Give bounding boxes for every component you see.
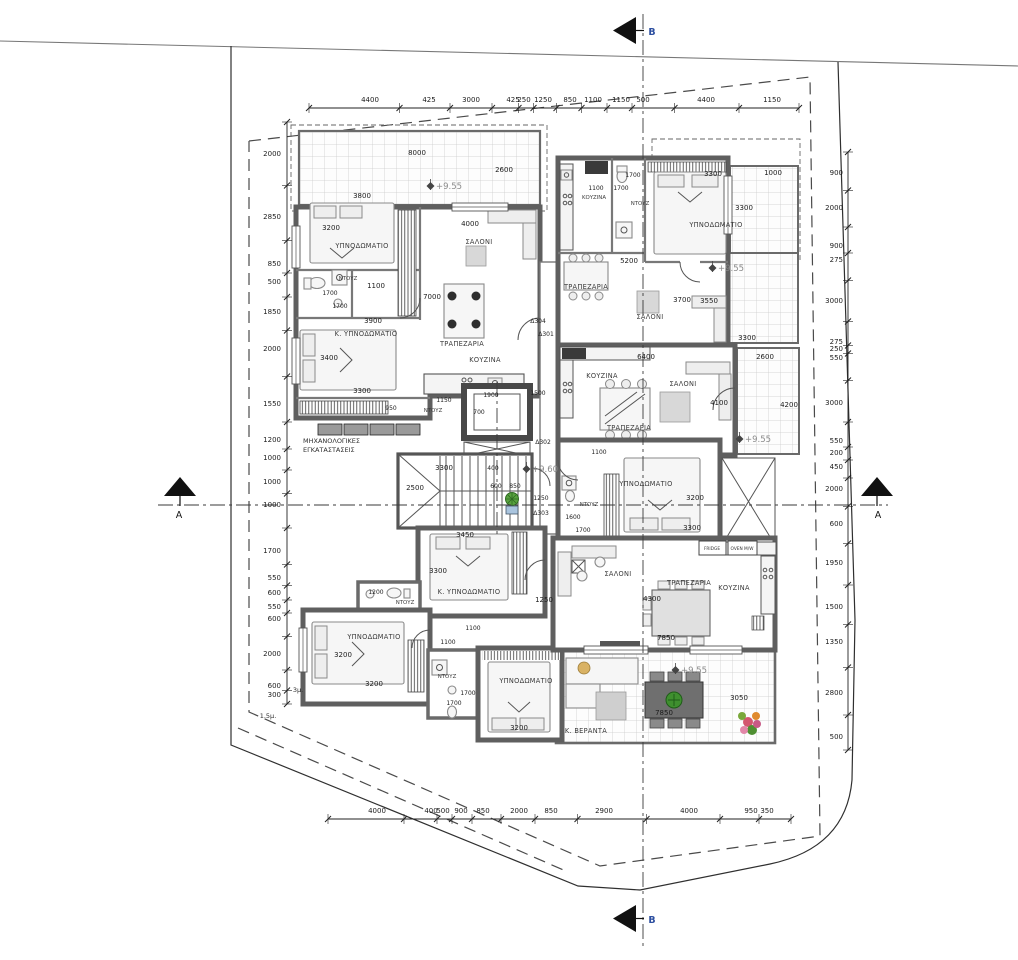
room-label: ΣΑΛΟΝΙ xyxy=(604,570,631,578)
level-marker: +9.55 xyxy=(436,182,462,192)
dining-table xyxy=(643,581,710,645)
toilet xyxy=(387,588,410,598)
bed xyxy=(488,662,550,732)
dimension-label: 500 xyxy=(268,278,281,286)
room-label: ΤΡΑΠΕΖΑΡΙΑ xyxy=(439,340,484,348)
dining-table xyxy=(444,284,484,338)
dimension-label: 1700 xyxy=(625,172,640,179)
sheet-frame xyxy=(0,41,1018,66)
apartment-d xyxy=(299,528,562,740)
dimension-label: 1000 xyxy=(263,478,281,486)
room-label: ΚΟΥΖΙΝΑ xyxy=(582,195,606,201)
section-marker-b-top xyxy=(613,17,644,44)
note-label: ΜΗΧΑΝΟΛΟΓΙΚΕΣ xyxy=(303,437,360,445)
dimension-label: 950 xyxy=(385,405,397,412)
dimension-label: 3300 xyxy=(704,170,722,178)
dimension-label: 450 xyxy=(830,463,843,471)
dimension-label: 2500 xyxy=(406,484,424,492)
room-label: ΤΡΑΠΕΖΑΡΙΑ xyxy=(563,283,608,291)
rug xyxy=(596,692,626,720)
dimension-label: 1700 xyxy=(322,290,337,297)
dimension-label: 1550 xyxy=(263,400,281,408)
dimension-label: 1150 xyxy=(612,96,630,104)
wardrobe xyxy=(398,210,416,316)
dimension-label: 1950 xyxy=(825,559,843,567)
dimension-label: 3300 xyxy=(435,464,453,472)
dim-chain-right: 9002000900275300027525055030005502004502… xyxy=(825,149,853,753)
room-label: ΤΡΑΠΕΖΑΡΙΑ xyxy=(666,579,711,587)
dimension-label: 7850 xyxy=(655,709,673,717)
bed xyxy=(300,330,396,390)
dimension-label: 8000 xyxy=(408,149,426,157)
room-label: ΝΤΟΥΖ xyxy=(438,674,457,680)
room-label: ΣΑΛΟΝΙ xyxy=(636,313,663,321)
section-label: A xyxy=(176,510,183,521)
dimension-label: 3300 xyxy=(429,567,447,575)
dimension-label: 850 xyxy=(544,807,557,815)
dimension-label: 550 xyxy=(268,603,281,611)
dimension-label: 4300 xyxy=(643,595,661,603)
dimension-label: 1000 xyxy=(263,454,281,462)
dimension-label: 550 xyxy=(268,574,281,582)
dimension-label: 1100 xyxy=(440,639,455,646)
dimension-label: 7850 xyxy=(657,634,675,642)
bed xyxy=(310,203,394,263)
dimension-label: 600 xyxy=(268,589,281,597)
dimension-label: 1700 xyxy=(332,303,347,310)
dimension-label: 1200 xyxy=(368,589,383,596)
room-label: ΝΤΟΥΖ xyxy=(424,408,443,414)
dimension-label: 250 xyxy=(517,96,530,104)
dimension-label: 1100 xyxy=(584,96,602,104)
dimension-label: 1700 xyxy=(613,185,628,192)
dimension-label: 2000 xyxy=(263,345,281,353)
dimension-label: 1250 xyxy=(534,96,552,104)
room-label: Κ. ΒΕΡΑΝΤΑ xyxy=(565,727,607,735)
note-label: ΕΓΚΑΤΑΣΤΑΣΕΙΣ xyxy=(303,446,355,454)
dimension-label: 4000 xyxy=(368,807,386,815)
dimension-label: 4000 xyxy=(680,807,698,815)
dimension-label: 1500 xyxy=(530,390,545,397)
dimension-label: 1900 xyxy=(483,392,498,399)
bed xyxy=(312,622,404,684)
wardrobe xyxy=(408,640,424,692)
dimension-label: 3000 xyxy=(825,297,843,305)
section-marker-a-right xyxy=(861,477,893,506)
dimension-label: 1250 xyxy=(535,596,553,604)
dimension-label: 1500 xyxy=(825,603,843,611)
dimension-label: 1100 xyxy=(588,185,603,192)
dimension-label: 550 xyxy=(830,437,843,445)
toilet xyxy=(566,491,575,502)
dimension-label: 1700 xyxy=(263,547,281,555)
dimension-label: 3200 xyxy=(686,494,704,502)
dimension-label: 1350 xyxy=(825,638,843,646)
dim-chain-left: 2000285085050018502000155012001000100010… xyxy=(263,119,292,707)
void-cross xyxy=(722,458,775,545)
section-marker-b-bottom xyxy=(613,905,644,932)
room-label: ΤΡΑΠΕΖΑΡΙΑ xyxy=(606,424,651,432)
level-marker: +9.55 xyxy=(681,666,707,676)
room-label: ΥΠΝΟΔΩΜΑΤΙΟ xyxy=(346,633,400,641)
dimension-label: 1100 xyxy=(591,449,606,456)
room-label: ΝΤΟΥΖ xyxy=(396,600,415,606)
room-label: ΥΠΝΟΔΩΜΑΤΙΟ xyxy=(688,221,742,229)
level-marker: +9.55 xyxy=(718,264,744,274)
louver-strip xyxy=(300,401,388,414)
dimension-label: 3800 xyxy=(353,192,371,200)
dimension-label: 4400 xyxy=(697,96,715,104)
dimension-label: 850 xyxy=(268,260,281,268)
dimension-label: 200 xyxy=(830,449,843,457)
dimension-label: 425 xyxy=(422,96,435,104)
rug xyxy=(660,392,690,422)
dimension-label: 600 xyxy=(490,483,502,490)
dimension-label: 1600 xyxy=(565,514,580,521)
shower-tray xyxy=(432,660,447,675)
level-marker: +9.55 xyxy=(745,435,771,445)
dimension-label: 2600 xyxy=(756,353,774,361)
dimension-label: 4000 xyxy=(461,220,479,228)
dimension-label: 1000 xyxy=(263,501,281,509)
appliance-label: FRIDGE xyxy=(704,546,720,552)
room-label: ΥΠΝΟΔΩΜΑΤΙΟ xyxy=(618,480,672,488)
dimension-label: 900 xyxy=(830,242,843,250)
dimension-label: 600 xyxy=(830,520,843,528)
dimension-label: 4100 xyxy=(710,399,728,407)
setback-label: 1.5μ. xyxy=(260,712,277,720)
dimension-label: 2600 xyxy=(495,166,513,174)
dimension-label: 4200 xyxy=(780,401,798,409)
dimension-label: 600 xyxy=(268,682,281,690)
dimension-label: 250 xyxy=(830,345,843,353)
dimension-label: 550 xyxy=(830,354,843,362)
dimension-label: 2900 xyxy=(595,807,613,815)
door-tag: Δ302 xyxy=(535,439,551,446)
outdoor-dining xyxy=(645,672,703,728)
floor-plan-sheet: 4400425300042525012508501100115050044001… xyxy=(0,0,1018,960)
balcony-b1 xyxy=(730,166,798,261)
dimension-label: 2000 xyxy=(825,204,843,212)
room-label: ΣΑΛΟΝΙ xyxy=(669,380,696,388)
dimension-label: 275 xyxy=(830,256,843,264)
rug xyxy=(637,291,659,313)
dimension-label: 5200 xyxy=(620,257,638,265)
dimension-label: 3200 xyxy=(322,224,340,232)
corridor xyxy=(540,262,558,534)
level-marker: +9.60 xyxy=(532,465,558,475)
room-label: ΚΟΥΖΙΝΑ xyxy=(469,356,501,364)
room-label: ΝΤΟΥΖ xyxy=(631,201,650,207)
dimension-label: 1150 xyxy=(763,96,781,104)
dimension-label: 1100 xyxy=(465,625,480,632)
rug xyxy=(466,246,486,266)
room-label: ΚΟΥΖΙΝΑ xyxy=(586,372,618,380)
dimension-label: 400 xyxy=(487,465,499,472)
dimension-label: 300 xyxy=(268,691,281,699)
room-label: ΚΟΥΖΙΝΑ xyxy=(718,584,750,592)
dimension-label: 500 xyxy=(636,96,649,104)
dimension-label: 1200 xyxy=(263,436,281,444)
dimension-label: 2000 xyxy=(263,650,281,658)
dimension-label: 700 xyxy=(473,409,485,416)
room-label: ΝΤΟΥΖ xyxy=(580,502,599,508)
dimension-label: 2000 xyxy=(825,485,843,493)
room-label: ΝΤΟΥΖ xyxy=(339,276,358,282)
dimension-label: 2850 xyxy=(263,213,281,221)
dimension-label: 3300 xyxy=(738,334,756,342)
dimension-label: 3900 xyxy=(364,317,382,325)
room-label: ΣΑΛΟΝΙ xyxy=(465,238,492,246)
dimension-label: 1100 xyxy=(367,282,385,290)
dimension-label: 3300 xyxy=(683,524,701,532)
dimension-label: 1700 xyxy=(460,690,475,697)
dim-chain-top: 4400425300042525012508501100115050044001… xyxy=(306,96,802,113)
dimension-label: 3200 xyxy=(510,724,528,732)
dimension-label: 850 xyxy=(563,96,576,104)
plant xyxy=(506,493,519,515)
dimension-label: 500 xyxy=(436,807,449,815)
dimension-label: 7000 xyxy=(423,293,441,301)
dimension-label: 6400 xyxy=(637,353,655,361)
dimension-label: 3300 xyxy=(353,387,371,395)
dimension-label: 900 xyxy=(830,169,843,177)
tv-bench xyxy=(600,641,640,646)
door-tag: Δ301 xyxy=(538,331,554,338)
dimension-label: 3000 xyxy=(825,399,843,407)
section-label: A xyxy=(875,510,882,521)
room-label: Κ. ΥΠΝΟΔΩΜΑΤΙΟ xyxy=(335,330,398,338)
room-label: ΥΠΝΟΔΩΜΑΤΙΟ xyxy=(498,677,552,685)
dimension-label: 1000 xyxy=(764,169,782,177)
dimension-label: 600 xyxy=(268,615,281,623)
dimension-label: 2800 xyxy=(825,689,843,697)
dimension-label: 3000 xyxy=(462,96,480,104)
dim-chain-bottom: 4000400500900850200085029004000950350 xyxy=(325,807,794,824)
appliance-label: OVEN M/W xyxy=(731,546,755,552)
dimension-label: 4400 xyxy=(361,96,379,104)
dining-table xyxy=(564,254,608,300)
closet-strip xyxy=(482,651,560,660)
dimension-label: 1700 xyxy=(575,527,590,534)
dimension-label: 3700 xyxy=(673,296,691,304)
dimension-label: 3050 xyxy=(730,694,748,702)
dimension-label: 1150 xyxy=(436,397,451,404)
section-marker-a-left xyxy=(164,477,196,506)
dimension-label: 3550 xyxy=(700,297,718,305)
wardrobe xyxy=(512,532,527,594)
door-tag: Δ304 xyxy=(530,318,546,325)
section-label: B xyxy=(648,27,655,38)
dimension-label: 3400 xyxy=(320,354,338,362)
room-label: Κ. ΥΠΝΟΔΩΜΑΤΙΟ xyxy=(438,588,501,596)
dimension-label: 1700 xyxy=(446,700,461,707)
dimension-label: 850 xyxy=(476,807,489,815)
section-label: B xyxy=(648,915,655,926)
shower-tray xyxy=(616,222,632,238)
dimension-label: 500 xyxy=(830,733,843,741)
washbasin xyxy=(448,686,456,694)
dimension-label: 3200 xyxy=(365,680,383,688)
dimension-label: 3200 xyxy=(334,651,352,659)
toilet xyxy=(448,706,457,718)
door-tag: Δ303 xyxy=(533,510,549,517)
setback-label: 3μ. xyxy=(293,686,303,694)
dimension-label: 2000 xyxy=(510,807,528,815)
bed xyxy=(654,172,726,254)
dimension-label: 3450 xyxy=(456,531,474,539)
dimension-label: 2000 xyxy=(263,150,281,158)
ac-units xyxy=(318,424,420,435)
room-label: ΥΠΝΟΔΩΜΑΤΙΟ xyxy=(334,242,388,250)
dimension-label: 3300 xyxy=(735,204,753,212)
dimension-label: 350 xyxy=(760,807,773,815)
wardrobe xyxy=(604,474,619,538)
toilet xyxy=(304,278,325,290)
dimension-label: 850 xyxy=(509,483,521,490)
dimension-label: 1850 xyxy=(263,308,281,316)
floor-plan-drawing: 4400425300042525012508501100115050044001… xyxy=(0,0,1018,960)
dimension-label: 950 xyxy=(744,807,757,815)
dimension-label: 900 xyxy=(454,807,467,815)
dimension-label: 1250 xyxy=(533,495,548,502)
